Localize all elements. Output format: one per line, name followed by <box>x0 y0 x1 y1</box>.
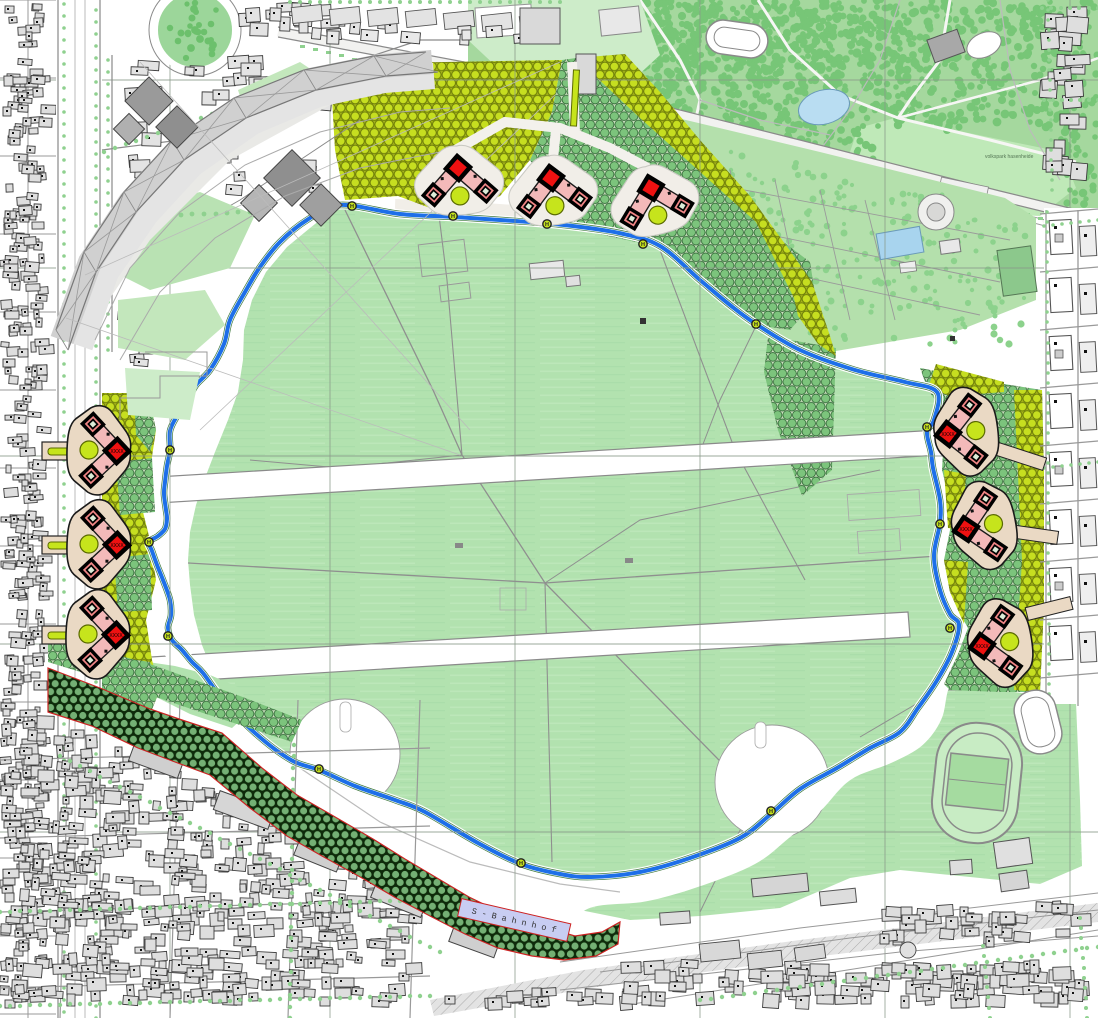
svg-text:H: H <box>519 861 523 867</box>
svg-text:H: H <box>938 522 942 528</box>
svg-text:H: H <box>925 425 929 431</box>
svg-text:H: H <box>166 634 170 640</box>
svg-text:XXXX: XXXX <box>975 644 989 650</box>
svg-text:XXXX: XXXX <box>110 543 124 549</box>
svg-text:H: H <box>350 204 354 210</box>
svg-text:H: H <box>545 222 549 228</box>
svg-text:XXXX: XXXX <box>109 633 123 639</box>
svg-text:H: H <box>317 767 321 773</box>
svg-text:H: H <box>451 214 455 220</box>
svg-text:XXXX: XXXX <box>959 527 973 533</box>
svg-text:XXXX: XXXX <box>941 432 955 438</box>
svg-text:H: H <box>168 448 172 454</box>
svg-text:H: H <box>769 809 773 815</box>
svg-text:H: H <box>147 540 151 546</box>
svg-text:XXXX: XXXX <box>110 449 124 455</box>
svg-text:volkspark hasenheide: volkspark hasenheide <box>985 154 1034 160</box>
svg-text:H: H <box>948 626 952 632</box>
svg-text:H: H <box>641 242 645 248</box>
svg-text:H: H <box>754 322 758 328</box>
